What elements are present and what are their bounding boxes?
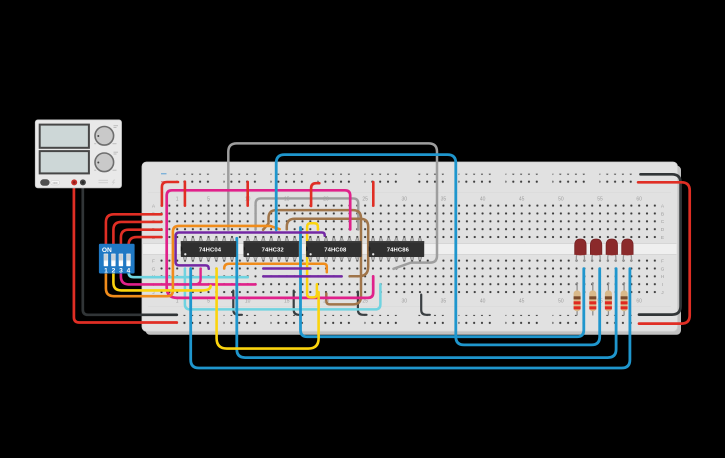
svg-text:H: H — [661, 274, 665, 280]
svg-text:50: 50 — [558, 299, 564, 305]
svg-text:3: 3 — [119, 268, 123, 275]
svg-text:ON: ON — [102, 247, 112, 254]
svg-text:C: C — [661, 219, 665, 225]
svg-text:30: 30 — [402, 196, 408, 202]
svg-text:50: 50 — [558, 196, 564, 202]
svg-text:45: 45 — [519, 299, 525, 305]
svg-text:G: G — [661, 266, 665, 272]
svg-text:25: 25 — [362, 299, 368, 305]
svg-text:1: 1 — [176, 196, 179, 202]
svg-text:60: 60 — [636, 196, 642, 202]
svg-text:60: 60 — [636, 299, 642, 305]
svg-text:2: 2 — [112, 268, 116, 275]
svg-text:E: E — [661, 235, 664, 241]
svg-text:74HC04: 74HC04 — [199, 247, 222, 253]
svg-text:F: F — [152, 259, 155, 265]
svg-text:5: 5 — [207, 196, 210, 202]
svg-text:40: 40 — [480, 196, 486, 202]
svg-text:G: G — [152, 266, 156, 272]
svg-text:1: 1 — [176, 299, 179, 305]
svg-text:40: 40 — [480, 299, 486, 305]
svg-text:74HC08: 74HC08 — [324, 247, 347, 253]
svg-text:1: 1 — [104, 268, 108, 275]
svg-text:35: 35 — [441, 196, 447, 202]
svg-text:D: D — [661, 227, 665, 233]
svg-text:55: 55 — [597, 196, 603, 202]
svg-text:30: 30 — [402, 299, 408, 305]
svg-text:15: 15 — [284, 299, 290, 305]
svg-text:74HC32: 74HC32 — [262, 247, 285, 253]
svg-text:10: 10 — [245, 299, 251, 305]
svg-text:OFF: OFF — [53, 181, 59, 185]
svg-text:F: F — [661, 259, 664, 265]
svg-text:B: B — [661, 211, 664, 217]
svg-text:74HC86: 74HC86 — [387, 247, 410, 253]
svg-text:45: 45 — [519, 196, 525, 202]
svg-text:5: 5 — [207, 299, 210, 305]
svg-text:4: 4 — [127, 268, 131, 275]
svg-text:35: 35 — [441, 299, 447, 305]
svg-text:25: 25 — [362, 196, 368, 202]
svg-text:I: I — [662, 282, 663, 288]
